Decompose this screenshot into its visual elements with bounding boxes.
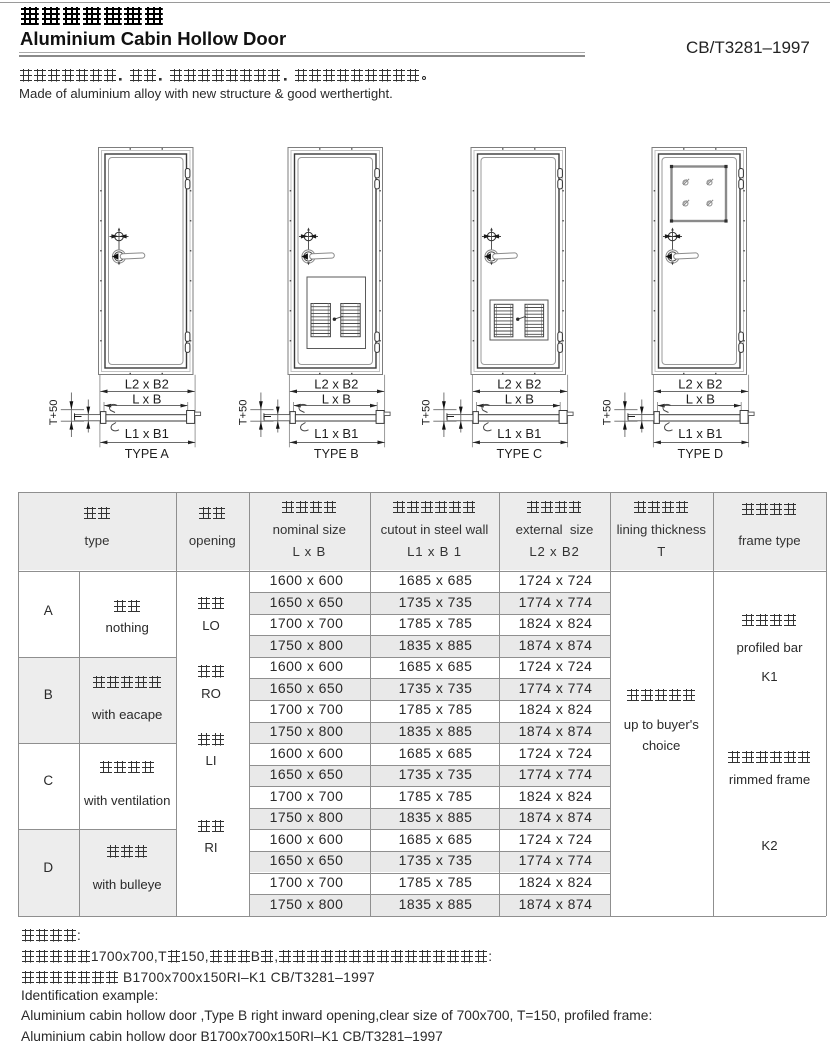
svg-text:L2 x B2: L2 x B2 (125, 376, 169, 391)
svg-text:L2 x B2: L2 x B2 (314, 376, 358, 391)
svg-text:L1 x B1: L1 x B1 (314, 426, 358, 441)
svg-text:TYPE C: TYPE C (497, 447, 543, 461)
svg-text:T: T (73, 413, 85, 420)
svg-text:L x B: L x B (132, 391, 161, 406)
svg-text:L1 x B1: L1 x B1 (497, 426, 541, 441)
svg-text:L x B: L x B (322, 391, 351, 406)
svg-text:L1 x B1: L1 x B1 (678, 426, 722, 441)
svg-text:T+50: T+50 (420, 399, 432, 425)
svg-text:L2 x B2: L2 x B2 (678, 376, 722, 391)
svg-text:TYPE D: TYPE D (678, 447, 724, 461)
svg-text:T: T (445, 413, 457, 420)
svg-text:L1 x B1: L1 x B1 (125, 426, 169, 441)
svg-text:TYPE B: TYPE B (314, 447, 359, 461)
svg-text:T: T (626, 413, 638, 420)
svg-text:L2 x B2: L2 x B2 (497, 376, 541, 391)
svg-text:T: T (262, 413, 274, 420)
svg-text:T+50: T+50 (237, 399, 249, 425)
svg-text:L x B: L x B (505, 391, 534, 406)
svg-text:T+50: T+50 (601, 399, 613, 425)
svg-text:L x B: L x B (686, 391, 715, 406)
svg-text:TYPE A: TYPE A (125, 447, 170, 461)
svg-text:T+50: T+50 (48, 399, 60, 425)
